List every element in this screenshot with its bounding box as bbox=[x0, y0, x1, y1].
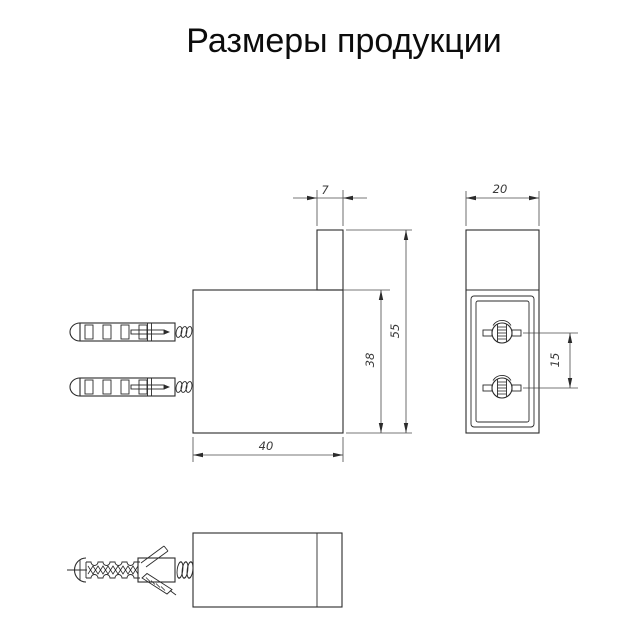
dim-label-7: 7 bbox=[321, 183, 329, 197]
dimension-depth: 20 bbox=[466, 182, 539, 226]
hook-body-front bbox=[193, 290, 343, 433]
dimension-body-height: 38 bbox=[343, 290, 390, 433]
dimension-hook-width: 7 bbox=[293, 183, 367, 226]
back-plate-inner bbox=[476, 301, 529, 422]
hook-body-bottom bbox=[193, 533, 342, 607]
dim-label-38: 38 bbox=[363, 353, 377, 368]
screw-upper bbox=[483, 320, 521, 343]
dim-label-40: 40 bbox=[259, 439, 274, 453]
anchor-fin-lower bbox=[142, 574, 176, 596]
dim-label-55: 55 bbox=[388, 324, 402, 339]
dimension-body-width: 40 bbox=[193, 437, 343, 462]
dim-label-20: 20 bbox=[493, 182, 508, 196]
hook-peg-front bbox=[317, 230, 343, 290]
wall-anchor-upper bbox=[70, 323, 193, 341]
dim-label-15: 15 bbox=[548, 353, 562, 368]
screw-lower bbox=[483, 375, 521, 398]
dimension-screw-spacing: 15 bbox=[523, 333, 578, 388]
side-view bbox=[466, 230, 539, 433]
anchor-fin-upper bbox=[141, 546, 168, 567]
dimension-total-height: 55 bbox=[346, 230, 412, 433]
technical-drawing-page: Размеры продукции bbox=[0, 0, 642, 642]
wall-anchor-lower bbox=[70, 378, 193, 396]
bottom-view bbox=[67, 533, 342, 607]
hook-body-side bbox=[466, 230, 539, 433]
wall-anchor-bottom bbox=[67, 546, 194, 595]
dimension-drawing: 7 55 38 40 bbox=[0, 0, 642, 642]
back-plate-outer bbox=[471, 296, 534, 427]
front-view bbox=[193, 230, 343, 433]
